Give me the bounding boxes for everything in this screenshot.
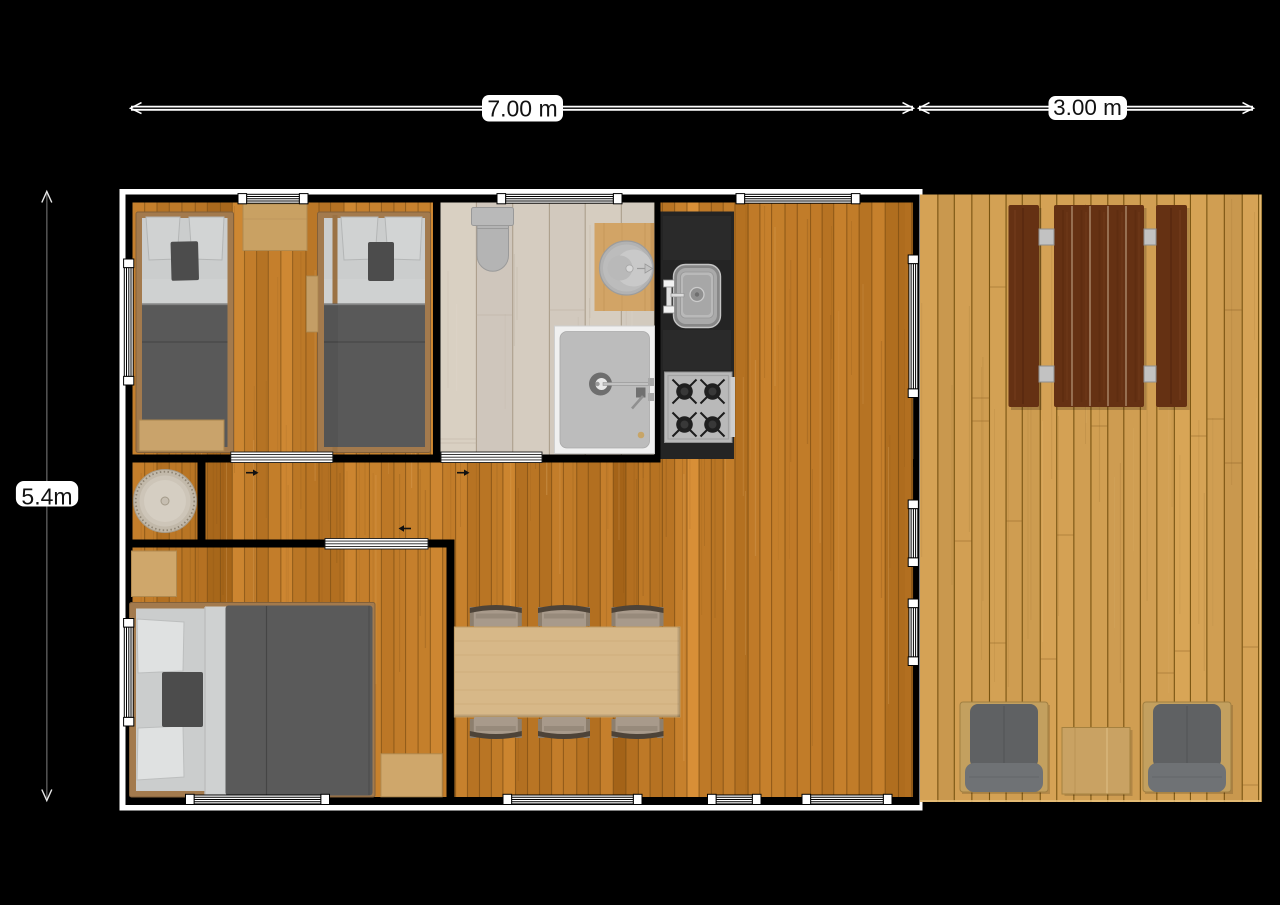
svg-text:5.4m: 5.4m — [21, 484, 72, 510]
svg-text:7.00 m: 7.00 m — [487, 96, 557, 122]
svg-text:3.00 m: 3.00 m — [1053, 95, 1122, 120]
